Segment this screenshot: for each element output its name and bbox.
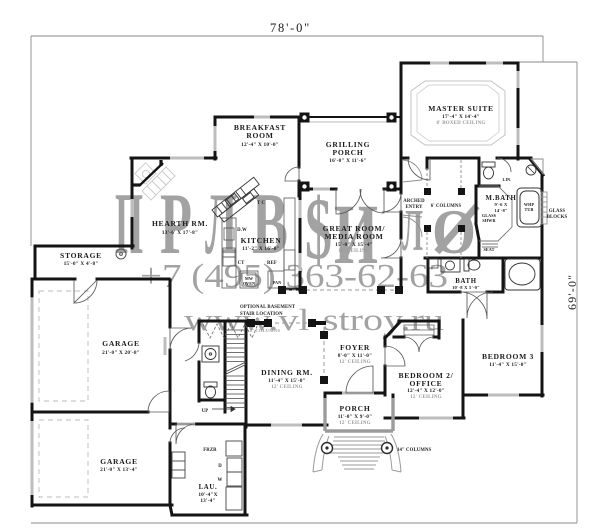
svg-text:11'-0" X 9'-0": 11'-0" X 9'-0": [338, 414, 373, 420]
svg-text:15'-0" X 15'-4": 15'-0" X 15'-4": [335, 242, 373, 248]
svg-text:8'-0" X 11'-0": 8'-0" X 11'-0": [338, 353, 373, 359]
svg-text:14" COLUMNS: 14" COLUMNS: [397, 448, 432, 453]
svg-text:PORCH: PORCH: [340, 404, 371, 413]
svg-text:GARAGE: GARAGE: [100, 457, 138, 466]
svg-text:9'-6 X: 9'-6 X: [494, 202, 508, 207]
svg-text:11'-4" X 15'-0": 11'-4" X 15'-0": [268, 378, 305, 384]
svg-text:78'-0": 78'-0": [270, 21, 311, 35]
svg-text:8' BOXED CEILING: 8' BOXED CEILING: [436, 121, 485, 126]
svg-text:UP: UP: [202, 409, 209, 414]
svg-text:M.BATH: M.BATH: [485, 195, 516, 202]
svg-text:PAN: PAN: [273, 280, 282, 285]
svg-text:12'-4" X 10'-0": 12'-4" X 10'-0": [241, 142, 279, 148]
svg-text:PORCH: PORCH: [333, 148, 364, 157]
svg-text:STORAGE: STORAGE: [60, 251, 102, 260]
svg-text:12' CEILING: 12' CEILING: [339, 421, 371, 426]
svg-text:21'-0" X 13'-4": 21'-0" X 13'-4": [100, 467, 138, 473]
svg-text:D.W: D.W: [237, 228, 247, 233]
svg-text:11'-4" X 15'-0": 11'-4" X 15'-0": [489, 362, 526, 368]
svg-text:DINING RM.: DINING RM.: [261, 368, 313, 377]
svg-text:69'-0": 69'-0": [565, 274, 579, 310]
svg-text:REF: REF: [267, 261, 277, 266]
svg-text:12' CEILING: 12' CEILING: [271, 385, 303, 390]
svg-text:13'-6' X 17'-8": 13'-6' X 17'-8": [162, 230, 198, 236]
svg-text:BEDROOM 3: BEDROOM 3: [482, 352, 534, 361]
svg-text:16'-0" X 11'-6": 16'-0" X 11'-6": [329, 158, 366, 164]
svg-text:BATH: BATH: [455, 278, 477, 285]
svg-text:BLOCKS: BLOCKS: [547, 215, 568, 220]
svg-text:LIN.: LIN.: [503, 177, 512, 182]
svg-text:6' COLUMNS: 6' COLUMNS: [431, 204, 462, 209]
svg-text:MASTER SUITE: MASTER SUITE: [428, 104, 494, 113]
svg-text:STAIR LOCATION: STAIR LOCATION: [240, 312, 283, 317]
svg-text:HEARTH RM.: HEARTH RM.: [152, 219, 208, 228]
svg-text:OFFICE: OFFICE: [410, 379, 443, 388]
svg-text:TUB: TUB: [525, 207, 534, 212]
svg-text:FOYER: FOYER: [340, 343, 370, 352]
svg-text:T C: T C: [257, 201, 266, 206]
svg-text:OVEN: OVEN: [243, 281, 256, 286]
svg-text:LAU.: LAU.: [199, 484, 218, 491]
svg-text:15'-0" X 4'-8": 15'-0" X 4'-8": [64, 261, 99, 267]
svg-text:10'-8 X 5'-0": 10'-8 X 5'-0": [452, 285, 480, 290]
svg-text:12'-4" X 12'-0": 12'-4" X 12'-0": [407, 388, 445, 394]
svg-text:OPTIONAL BASEMENT: OPTIONAL BASEMENT: [240, 305, 296, 310]
svg-text:W: W: [218, 478, 223, 483]
svg-text:12' CEILING: 12' CEILING: [410, 395, 442, 400]
svg-text:13'-4": 13'-4": [200, 498, 215, 504]
svg-text:SEAT: SEAT: [483, 247, 494, 252]
svg-text:KITCHEN: KITCHEN: [241, 236, 282, 245]
svg-text:17'-4" X 14'-4": 17'-4" X 14'-4": [442, 114, 480, 120]
svg-text:8' COLUMNS: 8' COLUMNS: [250, 328, 280, 333]
svg-text:ENTRY: ENTRY: [405, 205, 423, 210]
svg-text:11'-2" X 16'-0": 11'-2" X 16'-0": [242, 246, 279, 252]
svg-text:14'-8": 14'-8": [494, 208, 508, 213]
svg-text:12' CEILING: 12' CEILING: [339, 360, 371, 365]
svg-text:ARCHED: ARCHED: [403, 199, 425, 204]
svg-text:MEDIA ROOM: MEDIA ROOM: [324, 232, 383, 241]
svg-text:ROOM: ROOM: [246, 131, 273, 140]
svg-text:CT: CT: [238, 261, 246, 266]
svg-text:SHWR: SHWR: [482, 218, 496, 223]
svg-text:GLASS: GLASS: [549, 209, 565, 214]
svg-text:GARAGE: GARAGE: [102, 339, 140, 348]
svg-text:FRZR: FRZR: [203, 448, 217, 453]
svg-text:12' CEILING: 12' CEILING: [338, 249, 370, 254]
svg-text:D: D: [218, 464, 222, 469]
svg-text:21'-0" X 20'-8": 21'-0" X 20'-8": [102, 350, 140, 356]
